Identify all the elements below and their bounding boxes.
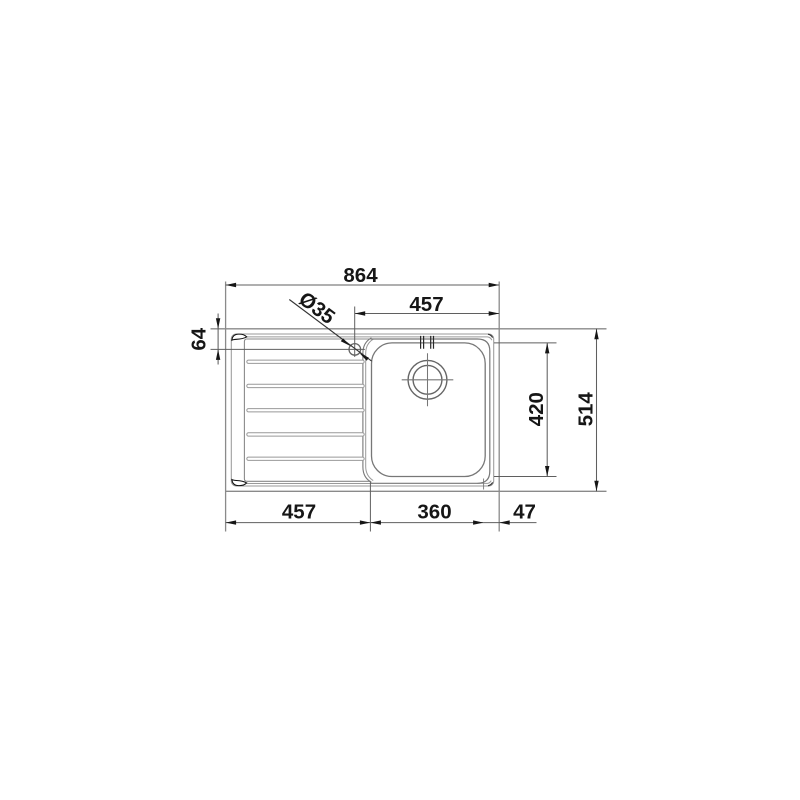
svg-text:64: 64	[187, 327, 210, 350]
svg-text:47: 47	[513, 501, 536, 524]
svg-text:420: 420	[525, 392, 548, 426]
svg-text:360: 360	[417, 501, 451, 524]
svg-text:457: 457	[409, 293, 443, 316]
svg-text:514: 514	[575, 392, 598, 427]
svg-text:457: 457	[282, 501, 316, 524]
svg-text:864: 864	[343, 264, 378, 287]
